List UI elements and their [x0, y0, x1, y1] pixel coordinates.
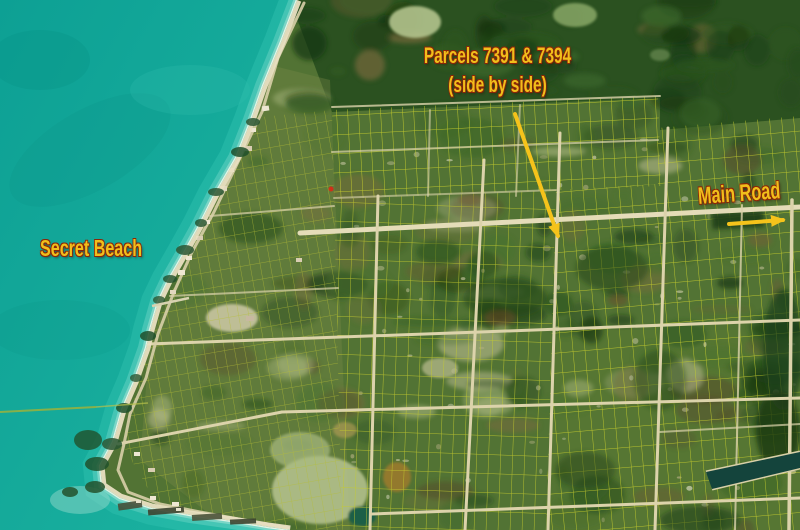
- aerial-map: Parcels 7391 & 7394 (side by side) Secre…: [0, 0, 800, 530]
- red-marker: [329, 187, 334, 192]
- parcels-annotation-line1: Parcels 7391 & 7394: [387, 41, 608, 70]
- parcels-annotation: Parcels 7391 & 7394 (side by side): [387, 41, 608, 99]
- main-road-label: Main Road: [697, 177, 781, 211]
- secret-beach-label: Secret Beach: [40, 235, 142, 262]
- parcels-annotation-line2: (side by side): [387, 70, 608, 99]
